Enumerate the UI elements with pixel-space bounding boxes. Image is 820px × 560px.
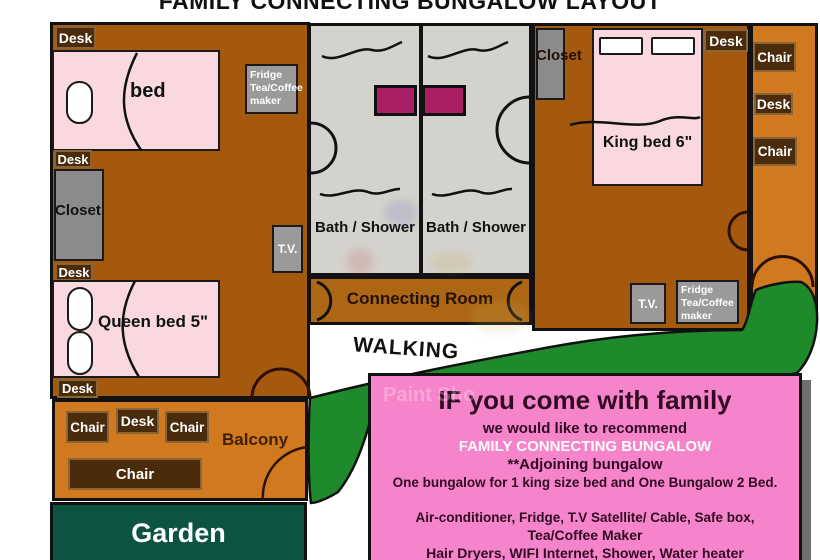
garden-area: Garden	[50, 502, 307, 560]
bed-fold-line	[570, 117, 700, 125]
bath-squiggle	[428, 42, 508, 58]
info-line: Tea/Coffee Maker	[371, 527, 799, 543]
info-line: **Adjoining bungalow	[371, 456, 799, 473]
garden-label: Garden	[131, 518, 226, 549]
door-arc	[311, 123, 336, 173]
paint-watermark: Paint Sho	[383, 384, 475, 407]
door-arc	[317, 282, 331, 320]
door-arc	[497, 97, 530, 163]
door-arc	[252, 369, 310, 398]
info-line: Hair Dryers, WIFI Internet, Shower, Wate…	[371, 545, 799, 560]
info-line: One bungalow for 1 king size bed and One…	[371, 475, 799, 490]
info-line-highlight: FAMILY CONNECTING BUNGALOW	[371, 438, 799, 455]
bath-squiggle	[322, 42, 402, 58]
bungalow-floorplan: FAMILY CONNECTING BUNGALOW LAYOUT bed De…	[0, 0, 820, 560]
bath-squiggle	[432, 189, 512, 196]
info-line: Air-conditioner, Fridge, T.V Satellite/ …	[371, 510, 799, 525]
bed-fold-line	[124, 53, 141, 150]
info-line: we would like to recommend	[371, 420, 799, 437]
door-arc	[263, 447, 308, 501]
bath-squiggle	[320, 189, 400, 196]
door-arc	[729, 212, 748, 250]
bed-fold-line	[123, 281, 139, 377]
recommendation-box: Paint Sho IF you come with family we wou…	[368, 373, 802, 560]
door-arc	[508, 282, 522, 320]
